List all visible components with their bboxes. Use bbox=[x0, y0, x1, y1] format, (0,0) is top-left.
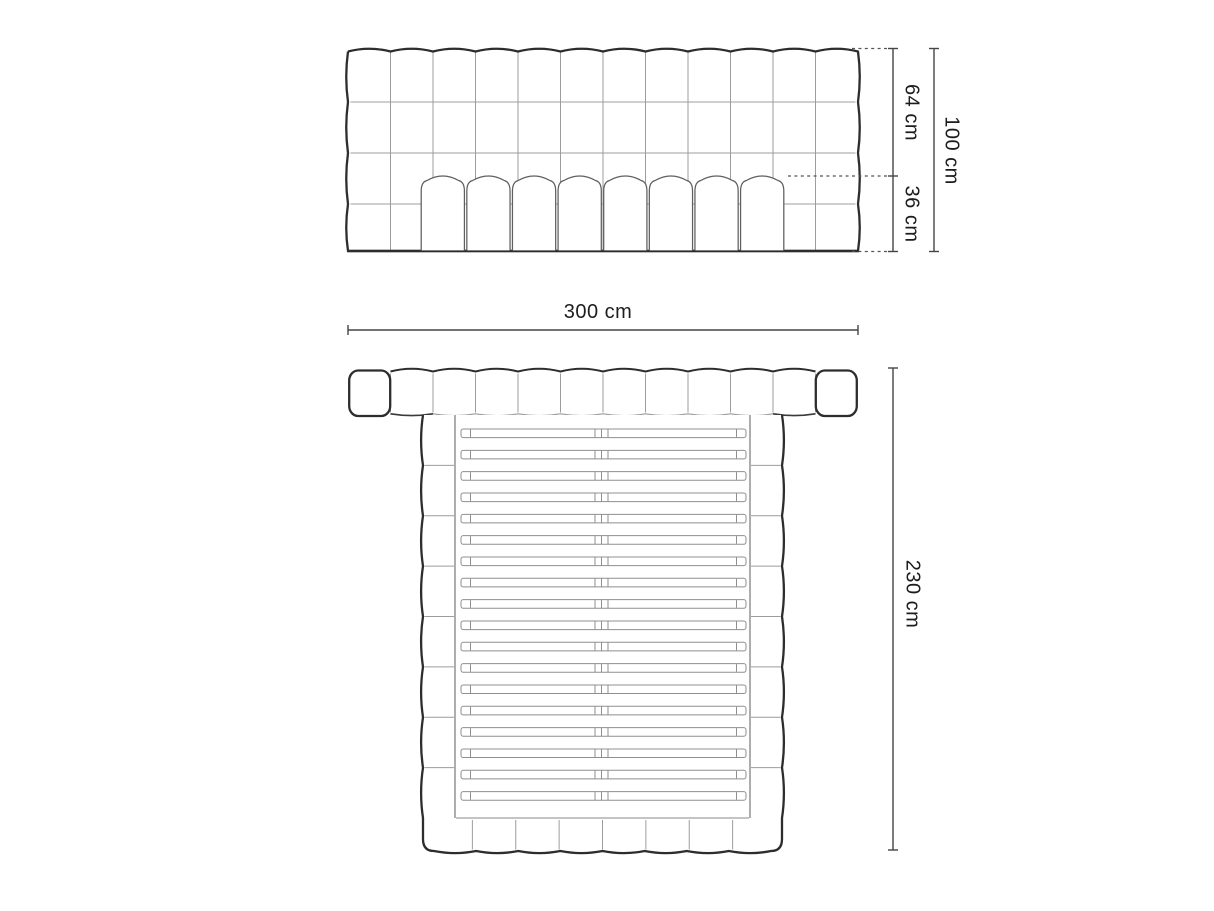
bed-dimension-diagram: 64 cm 36 cm 100 cm 300 cm 230 cm bbox=[0, 0, 1214, 911]
label-total-width: 300 cm bbox=[564, 301, 633, 323]
slat-bar bbox=[461, 770, 746, 779]
slat-bar bbox=[461, 685, 746, 694]
slat-bar bbox=[461, 642, 746, 651]
mattress-segment bbox=[604, 176, 647, 250]
mattress-segment bbox=[741, 176, 784, 250]
mattress-segment bbox=[649, 176, 692, 250]
label-total-depth: 230 cm bbox=[902, 560, 924, 629]
headboard-plan-left-cap bbox=[349, 371, 390, 417]
slat-bar bbox=[461, 514, 746, 523]
mattress-segment bbox=[421, 176, 464, 250]
slat-bar bbox=[461, 728, 746, 737]
dimension-line-300 bbox=[348, 325, 858, 335]
slat-row bbox=[461, 792, 746, 801]
slat-row bbox=[461, 450, 746, 459]
slat-bar bbox=[461, 472, 746, 481]
slat-row bbox=[461, 536, 746, 545]
dimension-line-100 bbox=[929, 49, 939, 252]
mattress-segment bbox=[695, 176, 738, 250]
slat-bar bbox=[461, 792, 746, 801]
slat-bar bbox=[461, 450, 746, 459]
slat-row bbox=[461, 770, 746, 779]
headboard-plan-view bbox=[349, 369, 857, 416]
label-total-height: 100 cm bbox=[941, 116, 963, 185]
slat-row bbox=[461, 429, 746, 438]
slat-row bbox=[461, 514, 746, 523]
mattress-segment bbox=[467, 176, 510, 250]
mattress-segment bbox=[512, 176, 555, 250]
bed-frame-plan-view bbox=[421, 415, 784, 854]
dimension-line-230 bbox=[888, 368, 898, 850]
slat-row bbox=[461, 706, 746, 715]
slat-bar bbox=[461, 493, 746, 502]
slat-bar bbox=[461, 664, 746, 673]
headboard-plan-right-cap bbox=[816, 371, 857, 417]
slat-bar bbox=[461, 621, 746, 630]
slat-row bbox=[461, 749, 746, 758]
label-lower-height: 36 cm bbox=[901, 186, 923, 243]
slat-bar bbox=[461, 749, 746, 758]
slat-row bbox=[461, 685, 746, 694]
slat-row bbox=[461, 557, 746, 566]
label-headboard-upper-height: 64 cm bbox=[901, 84, 923, 141]
slat-row bbox=[461, 728, 746, 737]
mattress-segment bbox=[558, 176, 601, 250]
slat-bar bbox=[461, 429, 746, 438]
slat-bar bbox=[461, 706, 746, 715]
slat-row bbox=[461, 578, 746, 587]
slat-row bbox=[461, 493, 746, 502]
slat-row bbox=[461, 642, 746, 651]
slat-bar bbox=[461, 600, 746, 609]
dimension-line-64-36 bbox=[888, 49, 898, 252]
slat-row bbox=[461, 600, 746, 609]
slat-row bbox=[461, 664, 746, 673]
slat-row bbox=[461, 621, 746, 630]
slat-bar bbox=[461, 536, 746, 545]
slat-row bbox=[461, 472, 746, 481]
slat-bar bbox=[461, 557, 746, 566]
slat-bar bbox=[461, 578, 746, 587]
